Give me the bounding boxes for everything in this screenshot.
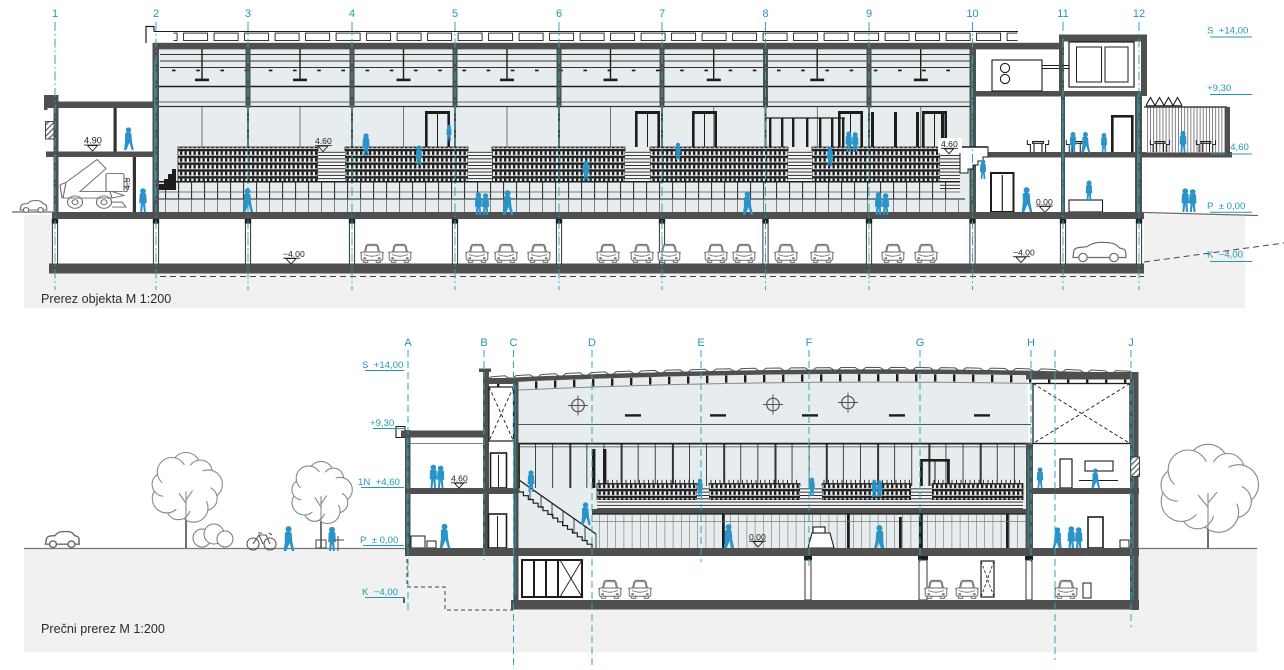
svg-text:0.00: 0.00 (1036, 197, 1053, 207)
svg-text:4.90: 4.90 (84, 136, 102, 146)
svg-text:P ± 0,00: P ± 0,00 (360, 535, 398, 546)
svg-text:S +14,00: S +14,00 (1207, 26, 1248, 37)
svg-text:1N +4,60: 1N +4,60 (358, 477, 400, 488)
svg-text:H: H (1027, 337, 1035, 349)
svg-text:1: 1 (52, 8, 58, 20)
svg-text:0.00: 0.00 (749, 532, 766, 542)
svg-text:−4.00: −4.00 (1013, 248, 1035, 258)
svg-text:A: A (404, 337, 412, 349)
svg-text:B: B (480, 337, 487, 349)
svg-text:Prečni prerez M 1:200: Prečni prerez M 1:200 (41, 622, 165, 636)
svg-text:+9,30: +9,30 (370, 418, 394, 429)
svg-text:4.60: 4.60 (941, 139, 958, 149)
svg-text:8: 8 (762, 8, 768, 20)
svg-text:J: J (1128, 337, 1134, 349)
svg-text:C: C (510, 337, 518, 349)
svg-text:P ± 0,00: P ± 0,00 (1207, 201, 1245, 212)
svg-text:D: D (588, 337, 596, 349)
svg-text:10: 10 (966, 8, 978, 20)
svg-text:7: 7 (659, 8, 665, 20)
svg-text:4.60: 4.60 (451, 474, 468, 484)
svg-text:−4.00: −4.00 (283, 249, 305, 259)
svg-text:G: G (916, 337, 925, 349)
svg-text:Prerez objekta M 1:200: Prerez objekta M 1:200 (41, 292, 171, 306)
svg-text:K −4,00: K −4,00 (1207, 250, 1243, 261)
svg-text:2: 2 (153, 8, 159, 20)
svg-text:3: 3 (245, 8, 251, 20)
svg-text:+9,30: +9,30 (1207, 83, 1231, 94)
svg-text:E: E (697, 337, 704, 349)
svg-text:12: 12 (1133, 8, 1145, 20)
svg-text:11: 11 (1057, 8, 1068, 20)
svg-text:9: 9 (866, 8, 872, 20)
svg-text:F: F (806, 337, 813, 349)
svg-text:6: 6 (556, 8, 562, 20)
svg-text:5: 5 (452, 8, 458, 20)
svg-text:4.60: 4.60 (315, 136, 332, 146)
svg-text:4: 4 (349, 8, 355, 20)
svg-text:K −4,00: K −4,00 (362, 587, 398, 598)
svg-text:S +14,00: S +14,00 (362, 360, 403, 371)
